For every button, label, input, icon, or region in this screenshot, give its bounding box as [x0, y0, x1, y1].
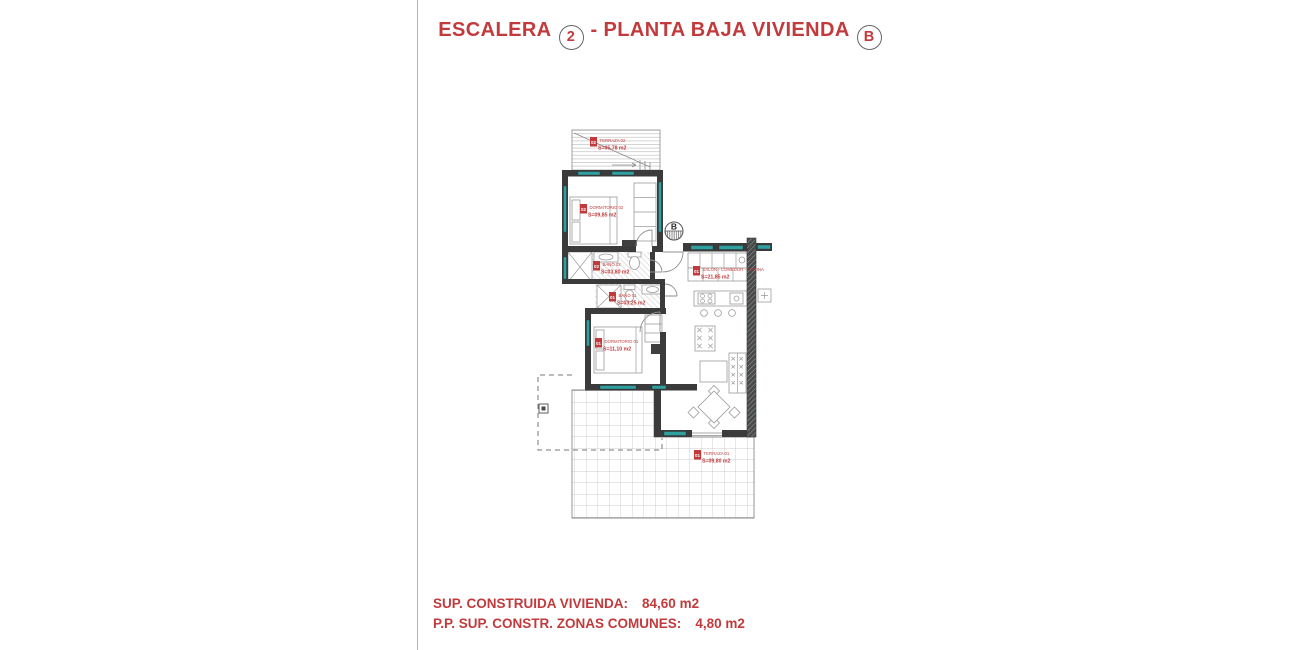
dining-living-furniture [688, 326, 746, 429]
neighbor-apartment-fragment [758, 289, 771, 302]
island-sink [730, 293, 743, 304]
chair [729, 407, 740, 418]
svg-text:S=09,85 m2: S=09,85 m2 [588, 213, 617, 219]
window [612, 172, 634, 176]
svg-text:02: 02 [591, 140, 597, 145]
built-area-value: 84,60 m2 [642, 596, 699, 611]
window [664, 432, 686, 436]
floor-plan-drawing: B 02 TERRAZA 02 S=05,78 m2 02 DORMITORIO… [0, 0, 1291, 650]
svg-text:01: 01 [596, 341, 602, 346]
common-zones-value: 4,80 m2 [695, 616, 745, 631]
svg-text:S=09,80 m2: S=09,80 m2 [702, 459, 731, 465]
bathroom-1-door [665, 284, 677, 296]
svg-text:01: 01 [610, 295, 616, 300]
svg-text:S=05,78 m2: S=05,78 m2 [598, 146, 627, 152]
window [758, 245, 771, 249]
built-area-label: SUP. CONSTRUIDA VIVIENDA: [433, 596, 628, 611]
svg-text:02: 02 [581, 207, 587, 212]
dwelling-marker: B [665, 222, 683, 241]
pillow [596, 351, 604, 370]
svg-text:TERRAZA 01: TERRAZA 01 [704, 451, 730, 456]
sliding-door [692, 433, 722, 436]
svg-text:02: 02 [594, 264, 600, 269]
svg-text:BAÑO 02: BAÑO 02 [603, 262, 622, 267]
coffee-table [700, 361, 727, 382]
window [587, 320, 590, 346]
svg-text:DORMITORIO 01: DORMITORIO 01 [605, 339, 639, 344]
radiator [622, 240, 637, 246]
toilet [630, 257, 640, 270]
svg-text:DORMITORIO 02: DORMITORIO 02 [590, 205, 624, 210]
window [652, 386, 666, 390]
svg-text:SALON - COMEDOR - COCINA: SALON - COMEDOR - COCINA [703, 267, 764, 272]
kitchen-furniture [688, 253, 747, 316]
window [719, 246, 743, 250]
stool [715, 310, 722, 317]
svg-text:S=11,10 m2: S=11,10 m2 [603, 347, 631, 353]
washbasin [599, 254, 613, 260]
svg-text:S=21,85 m2: S=21,85 m2 [701, 275, 730, 281]
washbasin [647, 287, 659, 293]
round-table [698, 391, 730, 423]
bedroom-1-furniture [594, 315, 666, 373]
window [564, 257, 567, 279]
dwelling-marker-letter: B [671, 222, 677, 232]
pillow [572, 200, 580, 220]
pillow [572, 222, 580, 242]
window [564, 186, 567, 232]
stool [701, 310, 708, 317]
chair [688, 407, 699, 418]
area-summary-line2: P.P. SUP. CONSTR. ZONAS COMUNES:4,80 m2 [433, 614, 745, 634]
stool [729, 310, 736, 317]
svg-text:01: 01 [694, 269, 700, 274]
window [578, 172, 600, 176]
window [659, 182, 662, 232]
svg-text:S=03,80 m2: S=03,80 m2 [601, 270, 630, 276]
svg-text:BAÑO 01: BAÑO 01 [619, 293, 638, 298]
window [691, 246, 713, 250]
area-summary: SUP. CONSTRUIDA VIVIENDA:84,60 m2 P.P. S… [433, 594, 745, 634]
svg-text:TERRAZA 02: TERRAZA 02 [600, 138, 626, 143]
common-zones-label: P.P. SUP. CONSTR. ZONAS COMUNES: [433, 616, 681, 631]
cooktop [698, 293, 715, 304]
entry-door [663, 252, 683, 272]
kitchen-sink [739, 257, 745, 263]
window [600, 386, 636, 390]
area-summary-line1: SUP. CONSTRUIDA VIVIENDA:84,60 m2 [433, 594, 745, 614]
svg-text:S=03,25 m2: S=03,25 m2 [617, 301, 646, 307]
svg-text:01: 01 [695, 453, 701, 458]
kitchen-counter [688, 253, 747, 268]
wardrobe [645, 315, 662, 342]
toilet-tank [624, 285, 635, 290]
